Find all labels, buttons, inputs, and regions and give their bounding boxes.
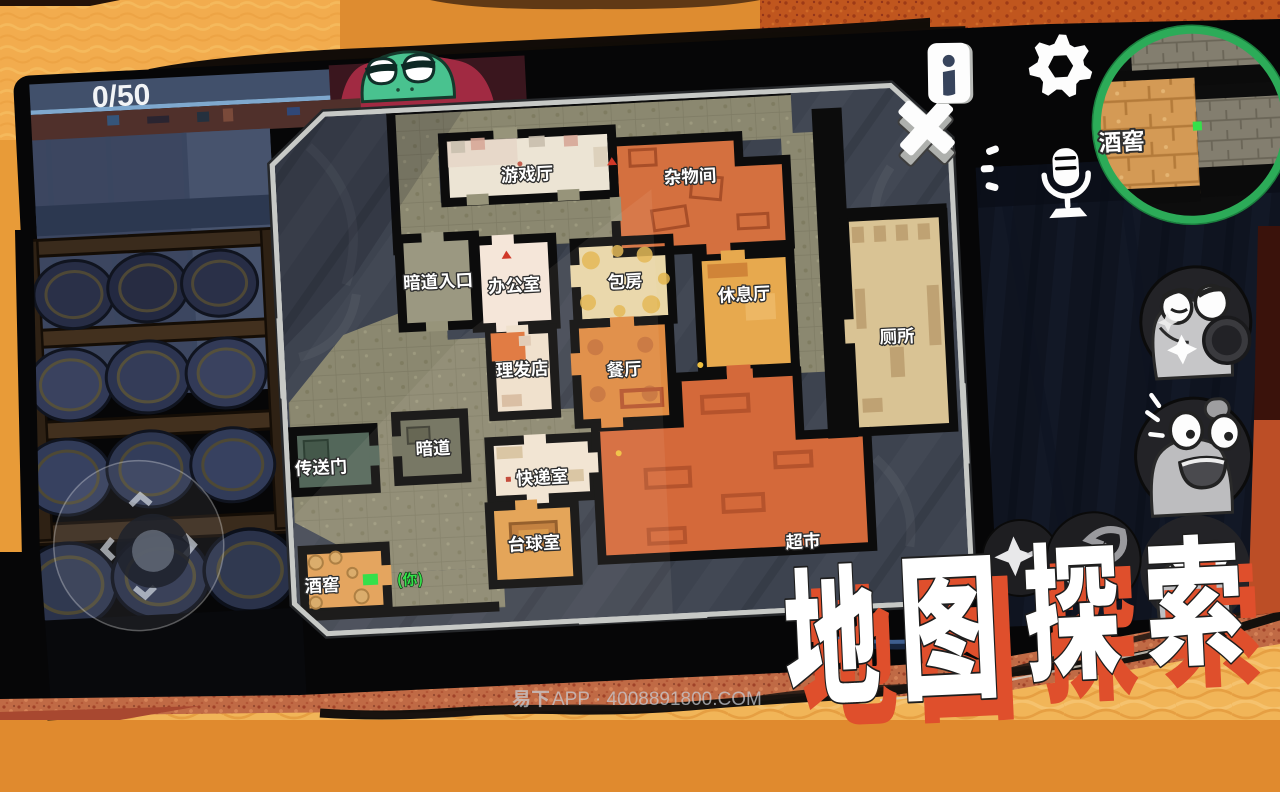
svg-text:APP · 4008891800.COM: APP · 4008891800.COM: [552, 689, 762, 710]
